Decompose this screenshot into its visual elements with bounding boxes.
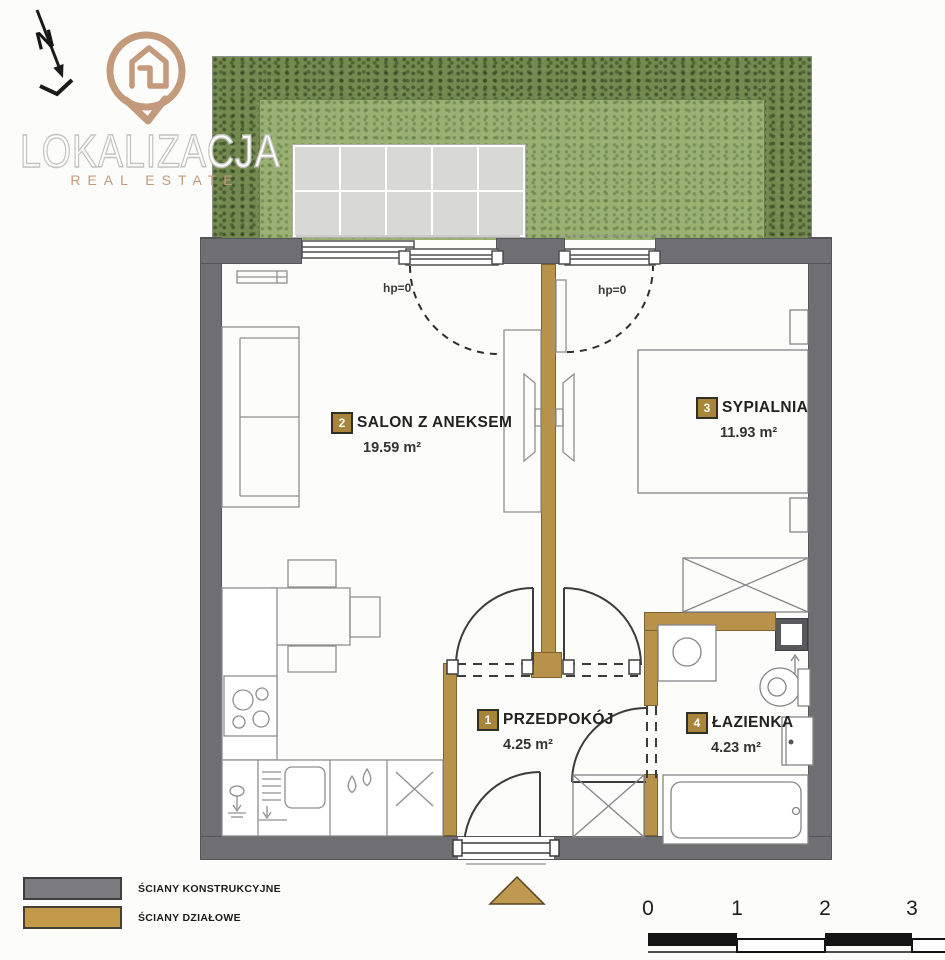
entrance-marker bbox=[490, 877, 544, 904]
hall-wardrobe bbox=[573, 775, 644, 837]
floor-plan: LOKALIZACJA REAL ESTATE N 2 SALON Z ANEK… bbox=[0, 0, 945, 960]
legend-label: ŚCIANY KONSTRUKCYJNE bbox=[138, 883, 281, 895]
legend-swatch-structural bbox=[23, 877, 122, 900]
legend-item-partition: ŚCIANY DZIAŁOWE bbox=[23, 906, 241, 929]
dining-set bbox=[270, 560, 380, 672]
window-height-label: hp=0 bbox=[383, 281, 411, 295]
room-label-salon: 2 SALON Z ANEKSEM 19.59 m² bbox=[331, 412, 512, 456]
scale-tick-label: 0 bbox=[642, 897, 654, 921]
scale-bar-graphic bbox=[648, 933, 945, 952]
legend-item-structural: ŚCIANY KONSTRUKCYJNE bbox=[23, 877, 281, 900]
sofa bbox=[222, 327, 299, 507]
bedroom-wardrobe bbox=[683, 558, 808, 612]
room-number-badge: 1 bbox=[477, 709, 499, 731]
room-name: SYPIALNIA bbox=[722, 399, 808, 417]
stove bbox=[224, 676, 277, 736]
room-label-przedpokoj: 1 PRZEDPOKÓJ 4.25 m² bbox=[477, 709, 614, 753]
entrance-threshold bbox=[453, 837, 559, 864]
scale-tick-label: 1 bbox=[731, 897, 743, 921]
logo-pin-icon bbox=[110, 35, 182, 121]
scale-tick-label: 3 bbox=[906, 897, 918, 921]
brand-tagline: REAL ESTATE bbox=[24, 172, 286, 188]
room-name: SALON Z ANEKSEM bbox=[357, 414, 512, 432]
room-label-sypialnia: 3 SYPIALNIA 11.93 m² bbox=[696, 397, 808, 441]
room-number-badge: 3 bbox=[696, 397, 718, 419]
washing-machine bbox=[658, 625, 716, 681]
room-name: PRZEDPOKÓJ bbox=[503, 711, 614, 729]
room-area: 4.23 m² bbox=[711, 740, 794, 756]
nightstand bbox=[790, 498, 808, 532]
salon-radiator bbox=[237, 271, 287, 283]
room-name: ŁAZIENKA bbox=[712, 714, 794, 732]
room-number-badge: 2 bbox=[331, 412, 353, 434]
windows bbox=[302, 241, 660, 265]
legend-swatch-partition bbox=[23, 906, 122, 929]
room-label-lazienka: 4 ŁAZIENKA 4.23 m² bbox=[686, 712, 794, 756]
balcony-door-arcs bbox=[410, 266, 653, 354]
room-area: 4.25 m² bbox=[503, 737, 614, 753]
tv-unit bbox=[504, 280, 574, 512]
window-height-label: hp=0 bbox=[598, 283, 626, 297]
scale-tick-label: 2 bbox=[819, 897, 831, 921]
opening-end-posts bbox=[447, 660, 640, 674]
brand-name: LOKALIZACJA bbox=[20, 124, 266, 178]
nightstand bbox=[790, 310, 808, 344]
toilet bbox=[760, 655, 810, 706]
bathtub bbox=[663, 775, 808, 844]
room-area: 11.93 m² bbox=[720, 425, 808, 441]
legend-label: ŚCIANY DZIAŁOWE bbox=[138, 912, 241, 924]
room-number-badge: 4 bbox=[686, 712, 708, 734]
room-area: 19.59 m² bbox=[363, 440, 512, 456]
